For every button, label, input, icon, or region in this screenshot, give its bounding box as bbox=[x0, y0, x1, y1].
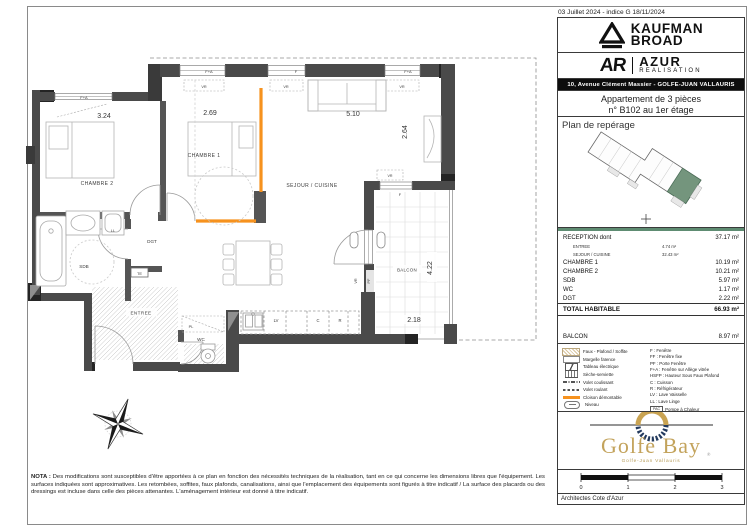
legend-abbrev: LL : Lave Linge bbox=[650, 399, 742, 405]
row-label: SEJOUR / CUISINE bbox=[573, 252, 610, 257]
equip-label-r: R bbox=[338, 318, 341, 323]
room-label-chambre1: CHAMBRE 1 bbox=[188, 153, 221, 159]
equip-label-c: C bbox=[316, 318, 319, 323]
balcony-pillar bbox=[444, 324, 457, 344]
location-mini-map bbox=[562, 131, 742, 226]
location-plan-title: Plan de repérage bbox=[562, 120, 742, 131]
balcony-value: 8.97 m² bbox=[719, 334, 739, 340]
cross-mark-icon bbox=[641, 214, 651, 224]
ar-initials: AR bbox=[599, 55, 627, 77]
legend-box: Faux - Plafond / Soffite Margelle faïenc… bbox=[557, 343, 745, 412]
bed-chambre2 bbox=[46, 122, 114, 178]
shutter-label-vr: VR bbox=[388, 174, 393, 178]
row-value: 37.17 m² bbox=[715, 235, 739, 241]
kaufman-broad-logo: KAUFMAN BROAD bbox=[557, 17, 745, 53]
total-label: TOTAL HABITABLE bbox=[563, 306, 620, 313]
room-label-sdb: SDB bbox=[79, 264, 88, 269]
row-label: RECEPTION dont bbox=[563, 235, 611, 241]
floor-plan: CHAMBRE 2 CHAMBRE 1 SEJOUR / CUISINE DGT… bbox=[0, 0, 557, 530]
scale-tick: 2 bbox=[673, 485, 676, 491]
row-value: 32.43 m² bbox=[662, 251, 679, 259]
equip-label-ll: LL bbox=[111, 228, 116, 233]
room-label-balcon: BALCON bbox=[397, 268, 417, 273]
emblem-gold-arc bbox=[638, 412, 666, 425]
row-value: 2.22 m² bbox=[719, 296, 739, 302]
row-label: CHAMBRE 2 bbox=[563, 269, 598, 275]
areas-table: RECEPTION dont37.17 m² ENTREE4.74 m² SEJ… bbox=[557, 227, 745, 344]
legend-item: Niveau bbox=[562, 401, 648, 409]
washbasin bbox=[66, 211, 100, 235]
legend-label: Sèche-serviette bbox=[583, 372, 614, 377]
legend-label: Tableau électrique bbox=[583, 364, 619, 369]
bed-chambre1 bbox=[188, 122, 256, 176]
location-plan-box: Plan de repérage bbox=[557, 116, 745, 228]
nota-prefix: NOTA : bbox=[31, 474, 51, 480]
window-label-fa: F+A bbox=[205, 69, 213, 74]
ar-divider bbox=[632, 57, 634, 74]
scale-tick: 0 bbox=[579, 485, 582, 491]
dim-sejour: 5.10 bbox=[346, 111, 360, 118]
golfe-bay-name: Golfe Bay bbox=[600, 433, 700, 458]
row-label: CHAMBRE 1 bbox=[563, 260, 598, 266]
architect-credit: Architectes Cote d'Azur bbox=[557, 493, 745, 505]
level-marker bbox=[350, 232, 358, 248]
dining-table bbox=[223, 241, 282, 285]
toilet bbox=[201, 344, 215, 363]
title-block-panel: 03 Juillet 2024 - indice G 18/11/2024 KA… bbox=[557, 8, 745, 505]
scale-tick: 1 bbox=[626, 485, 629, 491]
nota-body: Des modifications sont susceptibles d'êt… bbox=[31, 474, 545, 495]
row-value: 1.17 m² bbox=[719, 287, 739, 293]
level-marker bbox=[377, 232, 385, 248]
golfe-bay-logo: Golfe Bay ® Golfe-Juan Vallauris bbox=[560, 412, 743, 468]
dim-balcon-width: 2.18 bbox=[407, 317, 421, 324]
shutter-label-vr: VR bbox=[399, 85, 405, 89]
table-balcony-row: BALCON8.97 m² bbox=[558, 316, 744, 344]
row-label: DGT bbox=[563, 296, 576, 302]
table-row: CHAMBRE 210.21 m² bbox=[558, 267, 744, 276]
window-label-f: F bbox=[399, 192, 402, 197]
level-pill-icon bbox=[564, 401, 580, 409]
balcony-label: BALCON bbox=[563, 334, 588, 340]
legend-label: Faux - Plafond / Soffite bbox=[583, 349, 628, 354]
legend-symbols-column: Faux - Plafond / Soffite Margelle faïenc… bbox=[562, 348, 648, 409]
legend-label: Volet coulissant bbox=[583, 380, 614, 385]
dim-balcon-length: 4.22 bbox=[427, 261, 434, 275]
wardrobe bbox=[424, 116, 441, 162]
table-row: WC1.17 m² bbox=[558, 285, 744, 294]
room-label-entree: ENTREE bbox=[130, 311, 151, 316]
plan-sheet: CHAMBRE 2 CHAMBRE 1 SEJOUR / CUISINE DGT… bbox=[0, 0, 750, 530]
room-label-chambre2: CHAMBRE 2 bbox=[81, 181, 114, 187]
table-row: RECEPTION dont37.17 m² bbox=[558, 231, 744, 243]
room-label-sejour: SEJOUR / CUISINE bbox=[286, 183, 337, 189]
row-label: ENTREE bbox=[573, 244, 590, 249]
dim-chambre2: 3.24 bbox=[97, 113, 111, 120]
row-value: 10.19 m² bbox=[715, 260, 739, 266]
table-row: CHAMBRE 110.19 m² bbox=[558, 258, 744, 267]
row-value: 5.97 m² bbox=[719, 278, 739, 284]
legend-abbreviations-column: F : Fenêtre FF : Fenêtre fixe PF : Porte… bbox=[650, 348, 742, 409]
shutter-label-vr: VR bbox=[354, 278, 358, 284]
apartment-number: n° B102 au 1er étage bbox=[558, 105, 744, 116]
shutter-label-vr: VR bbox=[283, 85, 289, 89]
kaufman-triangle-icon bbox=[599, 22, 625, 49]
golfe-bay-subtitle: Golfe-Juan Vallauris bbox=[621, 458, 680, 464]
row-value: 10.21 m² bbox=[715, 269, 739, 275]
window-label-fa: F+A bbox=[80, 95, 88, 100]
sofa bbox=[308, 80, 386, 111]
bathtub bbox=[36, 216, 66, 286]
table-subrow: ENTREE4.74 m² bbox=[558, 243, 744, 251]
legend-label: Margelle faïence bbox=[583, 357, 615, 362]
azur-line: AZUR bbox=[639, 56, 701, 68]
equip-label-te: TE bbox=[137, 271, 142, 276]
equip-label-lv: LV bbox=[274, 318, 279, 323]
dim-chambre1: 2.69 bbox=[203, 110, 217, 117]
golfe-bay-logo-box: Golfe Bay ® Golfe-Juan Vallauris bbox=[557, 411, 745, 470]
kaufman-broad-name: KAUFMAN BROAD bbox=[631, 23, 703, 47]
legend-label: Niveau bbox=[585, 402, 599, 407]
row-label: WC bbox=[563, 287, 573, 293]
apartment-type: Appartement de 3 pièces bbox=[558, 94, 744, 105]
realisation-line: REALISATION bbox=[639, 68, 701, 75]
window-label-pf: PF bbox=[367, 278, 371, 284]
azur-realisation-logo: AR AZUR REALISATION bbox=[557, 52, 745, 79]
row-label: SDB bbox=[563, 278, 575, 284]
shower-clearance-circle bbox=[70, 240, 114, 284]
window-label-fa: F+A bbox=[404, 69, 412, 74]
scale-tick: 3 bbox=[720, 485, 723, 491]
dim-sejour-depth: 2.64 bbox=[402, 125, 409, 139]
scale-bar-box: 0 1 2 3 bbox=[557, 469, 745, 494]
room-label-wc: WC bbox=[197, 337, 205, 342]
room-label-dgt: DGT bbox=[147, 239, 157, 244]
apartment-title: Appartement de 3 pièces n° B102 au 1er é… bbox=[557, 90, 745, 117]
scale-bar: 0 1 2 3 bbox=[559, 471, 744, 493]
shutter-label-vr: VR bbox=[201, 85, 207, 89]
table-row: DGT2.22 m² bbox=[558, 294, 744, 303]
kaufman-line2: BROAD bbox=[631, 35, 703, 47]
row-value: 4.74 m² bbox=[662, 243, 676, 251]
registered-mark: ® bbox=[707, 451, 711, 457]
legend-label: Cloison démontable bbox=[583, 395, 622, 400]
total-value: 66.93 m² bbox=[714, 306, 739, 313]
compass-rose-icon bbox=[83, 389, 153, 459]
table-subrow: SEJOUR / CUISINE32.43 m² bbox=[558, 251, 744, 259]
azur-name: AZUR REALISATION bbox=[639, 56, 701, 75]
room-label-pl: PL bbox=[189, 325, 194, 329]
legend-label: Volet roulant bbox=[583, 387, 607, 392]
table-total-row: TOTAL HABITABLE66.93 m² bbox=[558, 303, 744, 316]
table-row: SDB5.97 m² bbox=[558, 276, 744, 285]
nota-text: NOTA : Des modifications sont susceptibl… bbox=[31, 474, 545, 497]
